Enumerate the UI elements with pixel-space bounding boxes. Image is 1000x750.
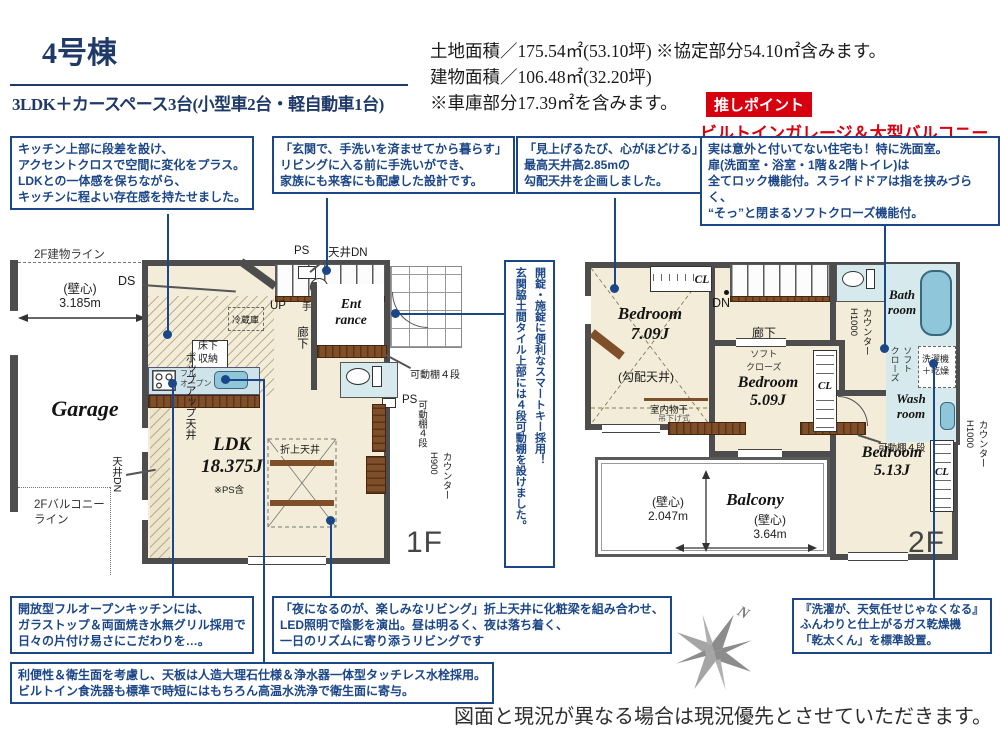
- toilet-bowl-2f: [842, 271, 864, 287]
- washroom-label: Wash room: [886, 392, 936, 422]
- leader-dot: [326, 516, 335, 525]
- floor-label-1f: 1F: [406, 526, 443, 560]
- ds-label: DS: [118, 274, 135, 288]
- shelf-column: [372, 404, 386, 452]
- kitchen-front-strip: [148, 395, 260, 408]
- leader-kitchen-upper: [167, 214, 169, 334]
- leader-smart-key: [397, 313, 505, 315]
- dn-dot: [724, 290, 729, 295]
- garage-window: [10, 310, 18, 356]
- leader-dot: [929, 359, 938, 368]
- balcony-label: Balcony: [710, 490, 800, 510]
- leader-dot: [322, 266, 331, 275]
- folded-ceiling-label: 折上天井: [278, 441, 322, 456]
- 2f-building-line-label: 2F建物ライン: [34, 246, 105, 262]
- counter1000-label-left: カウンター H1000: [846, 308, 872, 372]
- callout-open-kitchen: 開放型フルオープンキッチンには、 ガラストップ＆両面焼き水無グリル採用で 日々の…: [10, 596, 254, 654]
- counter-vlabel: カウンター H900: [426, 452, 452, 518]
- ceiling-dn-vlabel: 天井DN: [110, 456, 125, 506]
- soft-close-label-wet: ソフト クローズ: [888, 346, 913, 394]
- callout-living: 「夜になるのが、楽しみなリビング」折上天井に化粧梁を組み合わせ、 LED照明で陰…: [272, 596, 672, 654]
- ldk-left-window: [142, 428, 148, 452]
- leader-dot: [163, 330, 172, 339]
- sloped-ceiling-label: (勾配天井): [618, 368, 674, 385]
- bathtub: [920, 270, 952, 336]
- corridor-label-1f: 廊下: [294, 326, 310, 349]
- callout-smart-key: 開錠・施錠に便利なスマートキー採用！ 玄関脇土間タイル上部には４段可動棚を設けま…: [504, 260, 555, 568]
- leader-dot: [391, 309, 400, 318]
- garage-area-note: ※車庫部分17.39㎡を含みます。: [430, 90, 678, 115]
- balcony-dim-h-label: (壁心) 3.64m: [740, 514, 800, 542]
- entrance-label: Ent rance: [320, 296, 382, 327]
- floor-plan-2f: CL Bedroom 7.09J (勾配天井) 室内物干 吊下げ式 DN 廊下 …: [580, 252, 1000, 582]
- leader-dot: [880, 344, 889, 353]
- leader-counter-h: [227, 379, 265, 381]
- leader-gas-dryer: [933, 366, 935, 598]
- land-area-text: 土地面積／175.54㎡(53.10坪) ※協定部分54.10㎡含みます。: [430, 38, 886, 63]
- leader-living: [330, 523, 332, 596]
- hall-shelf-left: [668, 422, 746, 435]
- callout-door-lock: 実は意外と付いてない住宅も！特に洗面室。 扉(洗面室・浴室・1階＆2階トイレ)は…: [700, 136, 1000, 226]
- up-label: UP: [270, 300, 286, 312]
- title-divider: [10, 84, 408, 86]
- building-area-text: 建物面積／106.48㎡(32.20坪): [430, 64, 652, 89]
- garage-left-wall: [10, 260, 18, 512]
- leader-entrance-wash: [326, 198, 328, 272]
- shelf-label-entrance: 可動棚４段: [410, 366, 460, 381]
- ldk-south-window: [248, 556, 326, 565]
- bedroom1-window: [602, 424, 660, 433]
- leader-door-lock: [884, 214, 886, 350]
- balcony-dim-v-arrow: [700, 470, 712, 552]
- underfloor-label: 床下 収納: [198, 341, 218, 366]
- flyer-page: 4号棟 3LDK＋カースペース3台(小型車2台・軽自動車1台) 土地面積／175…: [0, 0, 1000, 750]
- 2f-building-line: [18, 262, 146, 263]
- bedroom2-window-top: [736, 338, 786, 347]
- bedroom2-closet-label: CL: [816, 380, 834, 393]
- drying-rod: [644, 398, 708, 401]
- callout-sloped-ceiling: 「見上げるたび、心がほどける」 最高天井高2.85mの 勾配天井を企画しました。: [516, 136, 712, 194]
- leader-dot: [610, 284, 619, 293]
- wash-sink: [940, 402, 955, 430]
- page-title: 4号棟: [42, 28, 117, 72]
- floor-label-2f: 2F: [908, 526, 945, 560]
- sloped-area-hatch: [150, 408, 170, 558]
- disclaimer-text: 図面と現況が異なる場合は現況優先とさせていただきます。: [430, 700, 992, 729]
- counter-column: [366, 456, 386, 494]
- leader-counter-v: [263, 379, 265, 662]
- counter1000-label-right: カウンター H1000: [962, 420, 988, 484]
- callout-counter-top: 利便性＆衛生面を考慮し、天板は人造大理石仕様＆浄水器一体型タッチレス水栓採用。 …: [10, 662, 494, 704]
- leader-dot: [221, 375, 230, 384]
- garage-dim-arrow: [18, 312, 146, 324]
- ldk-note: ※PS含: [214, 482, 244, 496]
- 2f-balcony-line-label: 2Fバルコニー ライン: [34, 498, 105, 528]
- ps-label-top: PS: [294, 245, 309, 257]
- shelf-vlabel: 可動棚４段: [414, 400, 428, 460]
- ldk-left-window2: [142, 500, 148, 520]
- leader-dot: [168, 379, 177, 388]
- garage-label: Garage: [40, 396, 130, 421]
- highlight-badge: 推しポイント: [706, 92, 812, 117]
- fridge-label: 冷蔵庫: [232, 313, 259, 326]
- leader-open-kitchen: [172, 388, 174, 596]
- compass-n: N: [734, 603, 753, 623]
- stairs-2f-strip: [730, 296, 830, 302]
- floor-plan-1f: 2F建物ライン (壁心) 3.185m Garage 2Fバルコニー ライン D…: [10, 252, 540, 582]
- compass-rose: N: [662, 594, 766, 698]
- toilet-tank-2f: [866, 269, 875, 289]
- stairs-2f: [730, 264, 830, 298]
- entrance-shelf: [317, 345, 387, 358]
- callout-gas-dryer: 『洗濯が、天気任せじゃなくなる』 ふんわりと仕上がるガス乾燥機 「乾太くん」を標…: [792, 598, 992, 654]
- closet-label: CL: [692, 274, 712, 287]
- balcony-dim-h-arrow: [675, 542, 817, 554]
- leader-sloped-ceiling: [614, 198, 616, 290]
- bedroom1-label: Bedroom 7.09J: [602, 304, 698, 343]
- bedroom3-label: Bedroom 5.13J: [844, 444, 940, 481]
- bedroom3-closet-label: CL: [933, 466, 951, 479]
- toilet-tank-1f: [372, 366, 382, 387]
- dn-label: DN: [712, 296, 730, 310]
- bedroom2-label: Bedroom 5.09J: [724, 374, 812, 411]
- garage-dim-label: (壁心) 3.185m: [40, 282, 120, 311]
- callout-kitchen-upper: キッチン上部に段差を設け、 アクセントクロスで空間に変化をプラス。 LDKとの一…: [10, 136, 254, 210]
- layout-subtitle: 3LDK＋カースペース3台(小型車2台・軽自動車1台): [12, 90, 384, 115]
- 2f-balcony-line-h: [18, 487, 110, 488]
- bedroom3-window: [848, 552, 908, 561]
- bedroom1-west-window: [585, 296, 591, 324]
- bathroom-label: Bath room: [880, 288, 924, 318]
- balcony-dim-v-label: (壁心) 2.047m: [638, 496, 698, 524]
- toilet-bowl-1f: [346, 368, 370, 385]
- ceiling-dn-label-top: 天井DN: [328, 244, 368, 260]
- callout-entrance-wash: 「玄関で、手洗いを済ませてから暮らす」 リビングに入る前に手洗いができ、 家族に…: [272, 136, 515, 194]
